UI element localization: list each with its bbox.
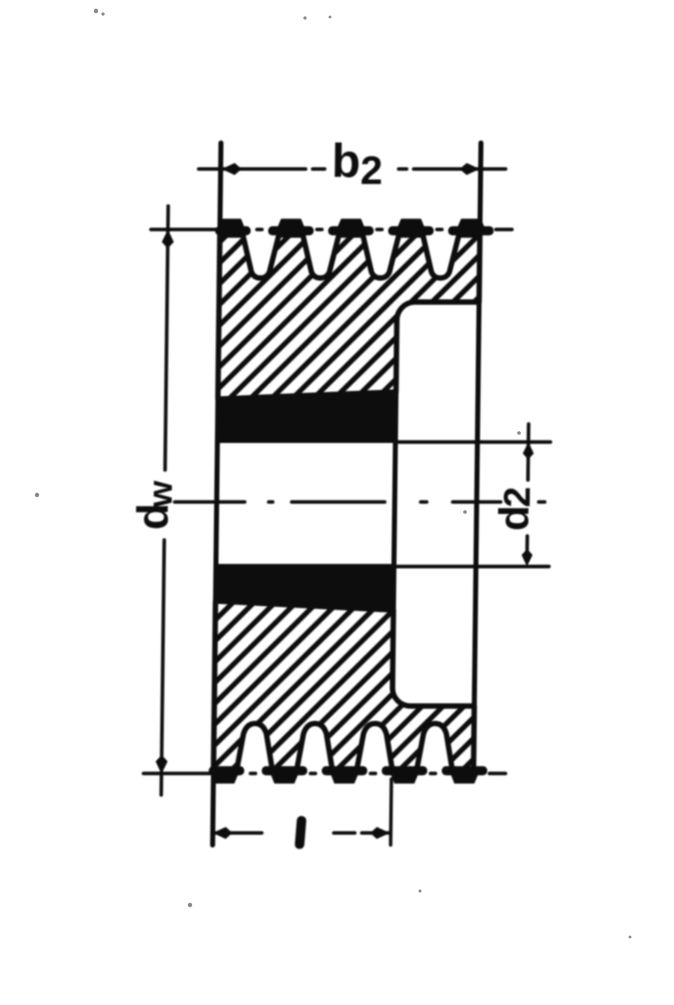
svg-text:d2: d2 xyxy=(490,487,538,531)
